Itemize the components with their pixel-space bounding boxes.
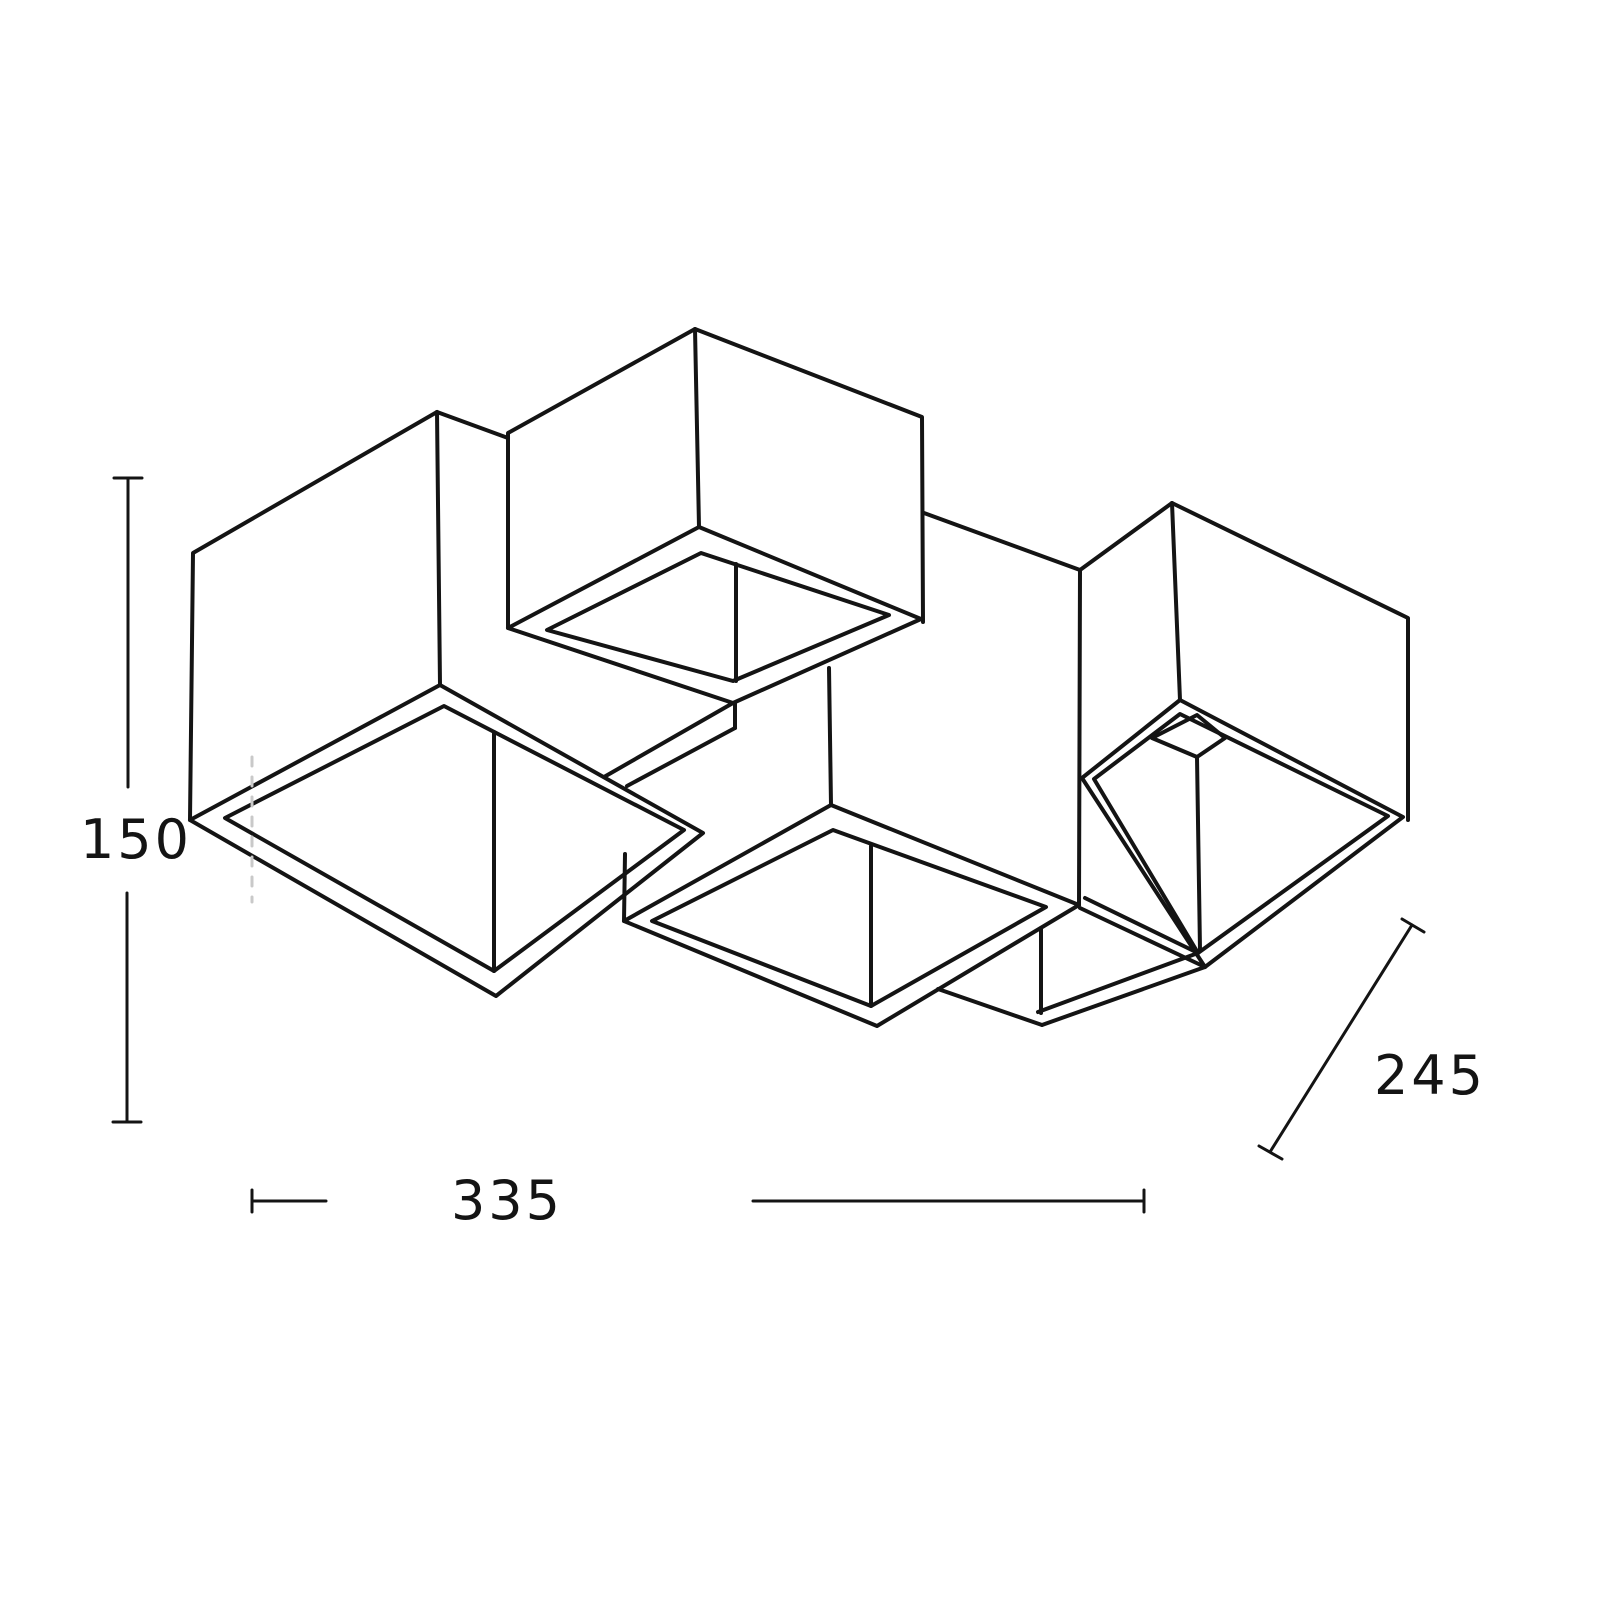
cube-left-silhouette xyxy=(190,412,437,820)
cube-right-left-edge xyxy=(1079,570,1080,905)
cube-top-silhouette xyxy=(508,329,923,628)
lower-frame-left-arm xyxy=(938,989,1042,1025)
cube-left-center-edge xyxy=(437,412,440,685)
cube-left-mouth-inner xyxy=(225,706,684,971)
lower-frame-inner-right-arm xyxy=(1038,953,1198,1012)
cube-right-inner-ceiling xyxy=(1152,715,1225,757)
height-dimension: 150 xyxy=(80,478,192,1122)
cube-bottom-mouth-inner xyxy=(652,830,1046,1006)
cube-right-silhouette xyxy=(1080,503,1408,820)
depth-dimension-label: 245 xyxy=(1374,1044,1486,1107)
cube-bottom-near-edge xyxy=(829,668,831,805)
technical-drawing-svg: 150 335 245 xyxy=(0,0,1600,1600)
cube-right-mouth-inner xyxy=(1094,714,1388,953)
cube-right-center-edge xyxy=(1172,503,1180,700)
cube-top-center-edge xyxy=(695,329,699,527)
cube-bottom-back-top-edge xyxy=(924,513,1080,570)
cube-bottom-left-edge xyxy=(624,854,625,921)
width-dimension-label: 335 xyxy=(451,1169,563,1232)
drawing-canvas: 150 335 245 xyxy=(0,0,1600,1600)
junction-edge-b xyxy=(627,728,735,786)
depth-dim-top-tick xyxy=(1402,919,1424,932)
width-dimension: 335 xyxy=(252,1169,1144,1232)
cube-top-center xyxy=(508,329,923,786)
cube-right-mouth-outer xyxy=(1082,700,1403,967)
cube-left-top-right-edge xyxy=(437,412,508,438)
lower-frame-outer-right-arm xyxy=(1042,967,1205,1025)
lower-frame-detail xyxy=(938,898,1205,1025)
height-dimension-label: 150 xyxy=(80,808,192,871)
depth-dimension: 245 xyxy=(1259,919,1486,1159)
depth-dim-line xyxy=(1270,925,1412,1152)
depth-dim-bottom-tick xyxy=(1259,1146,1282,1159)
cube-right xyxy=(1079,503,1408,967)
cube-top-mouth-inner xyxy=(547,553,889,681)
cube-right-recess-edge xyxy=(1197,757,1200,950)
